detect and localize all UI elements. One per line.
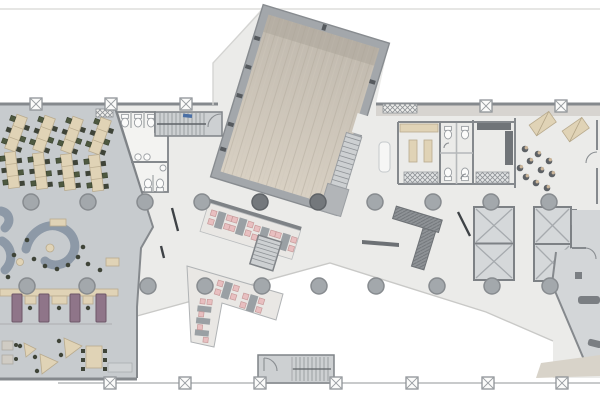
grid-marker bbox=[480, 100, 492, 112]
floor-plan: Central open plaza Open void Open office… bbox=[0, 0, 600, 400]
settee bbox=[379, 142, 390, 172]
grid-marker bbox=[555, 100, 567, 112]
floor-plan-canvas: Central open plaza Open void Open office… bbox=[0, 0, 600, 400]
elevator-core-a: Elevator core bbox=[474, 207, 514, 280]
grid-marker bbox=[180, 98, 192, 110]
fire-stair-bottom: Fire stair bbox=[258, 355, 334, 383]
staircase-top: Staircase bbox=[155, 112, 222, 136]
grid-marker bbox=[105, 98, 117, 110]
grid-marker bbox=[30, 98, 42, 110]
vent-grille bbox=[383, 104, 417, 113]
wc-cells: WC cells bbox=[440, 123, 473, 184]
